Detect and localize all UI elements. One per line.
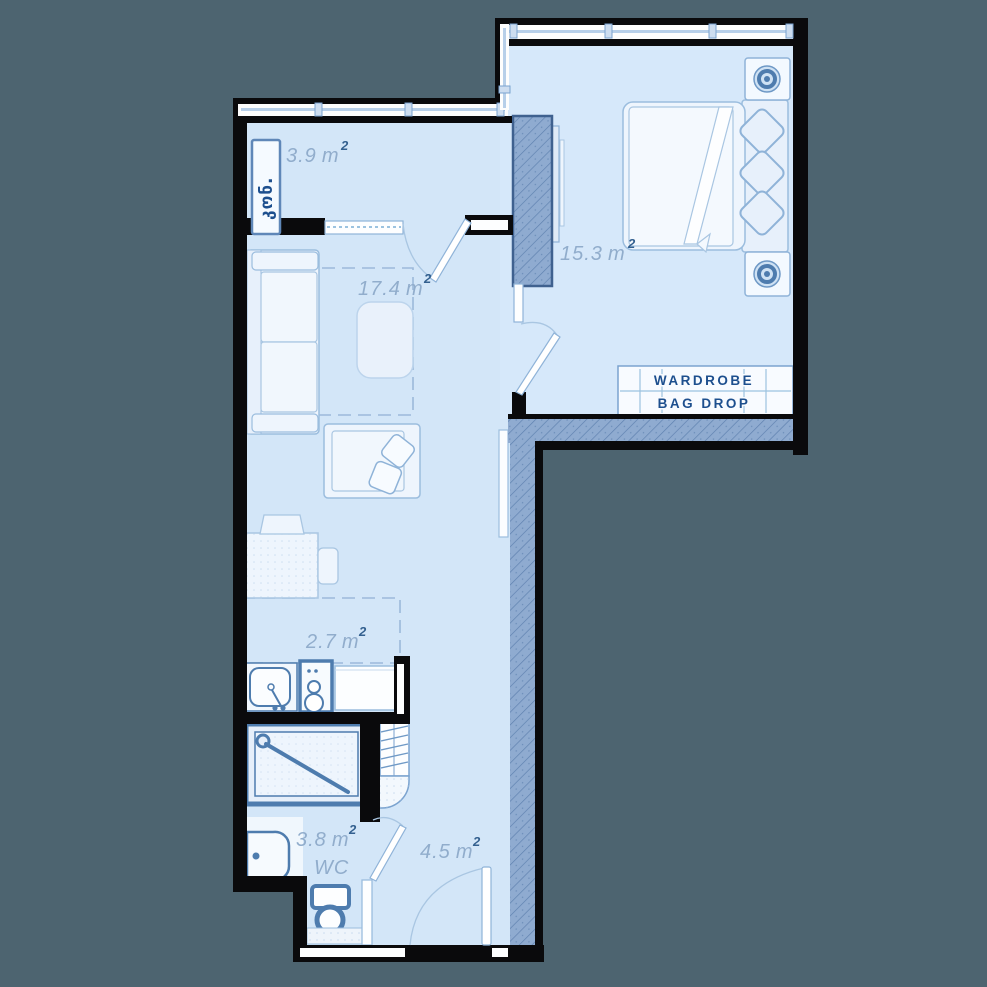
window-mullion [510,24,517,38]
thick-wall-inner-edge-v [535,441,543,962]
kitchen-wall-core [397,664,404,714]
burner [305,694,323,712]
thick-wall-inner-edge-h [535,441,795,450]
bathroom-area-sup: 2 [348,822,357,837]
bathroom-area-label: 3.8m [296,829,349,851]
counter [335,666,397,710]
balcony-window-outer-wall [233,98,509,104]
balcony-area-sup: 2 [340,138,349,153]
armchair [324,424,420,498]
structural-column [513,116,552,286]
wall-stub-core [471,220,508,230]
sink [250,668,290,706]
kitchen-units [243,661,397,712]
hallway-area-label: 4.5m [420,841,473,863]
nightstand-bottom [745,252,790,296]
toilet-niche-partition [362,880,372,945]
vent-shaft [378,722,409,808]
window-mullion [709,24,716,38]
bedroom-door-frame [514,284,523,322]
bed [623,100,788,252]
sofa-cushion [261,272,317,342]
kitchen-bottom-wall [237,712,410,724]
bedroom-area-sup: 2 [627,236,636,251]
wardrobe-label: WARDROBE [654,373,754,388]
sofa-cushion [261,342,317,412]
thick-wall-horizontal [508,419,795,443]
kitchen-area-label: 2.7m [305,631,359,653]
ac-unit: კონ. [252,140,280,234]
bedroom-window-outer-wall [495,18,808,25]
hallway-area-sup: 2 [472,834,481,849]
window-mullion [605,24,612,38]
thick-wall-vertical [510,419,535,949]
sofa [247,250,319,434]
left-wall [233,98,247,892]
entrance-door-leaf [482,867,491,945]
washbasin [243,832,289,880]
tv [552,126,564,242]
coffee-table [357,302,413,378]
wardrobe-bag-drop: WARDROBE BAG DROP [618,366,793,415]
window-mullion [405,103,412,116]
chair [260,515,304,534]
chair [318,548,338,584]
living-area-sup: 2 [423,271,432,286]
window-mullion [315,103,322,116]
thick-wall-top-edge [508,414,795,419]
bag-drop-label: BAG DROP [658,396,751,411]
wc-label: WC [314,857,349,879]
balcony-inner-wall [240,116,512,123]
threshold-sill [300,948,405,957]
hall-mirror [499,430,508,537]
bedroom-door-stub [512,392,526,415]
shower [246,724,367,804]
bedroom-right-wall [793,18,808,455]
balcony-area-label: 3.9m [286,145,339,167]
floor-plan-drawing: WARDROBE BAG DROP [0,0,987,987]
living-area-label: 17.4m [358,278,424,300]
floor-plan: WARDROBE BAG DROP [0,0,987,987]
sofa-armrest [252,414,318,432]
ac-unit-label: კონ. [257,177,277,220]
window-mullion [786,24,793,38]
kitchen-area-sup: 2 [358,624,367,639]
bathroom-right-wall [360,712,380,822]
faucet [272,705,277,710]
sofa-armrest [252,252,318,270]
burner [308,681,320,693]
bedroom-inner-wall [508,39,795,46]
window-mullion [499,86,510,93]
bedroom-area-label: 15.3m [560,243,626,265]
threshold-sill [492,948,508,957]
nightstand-top [745,58,790,100]
